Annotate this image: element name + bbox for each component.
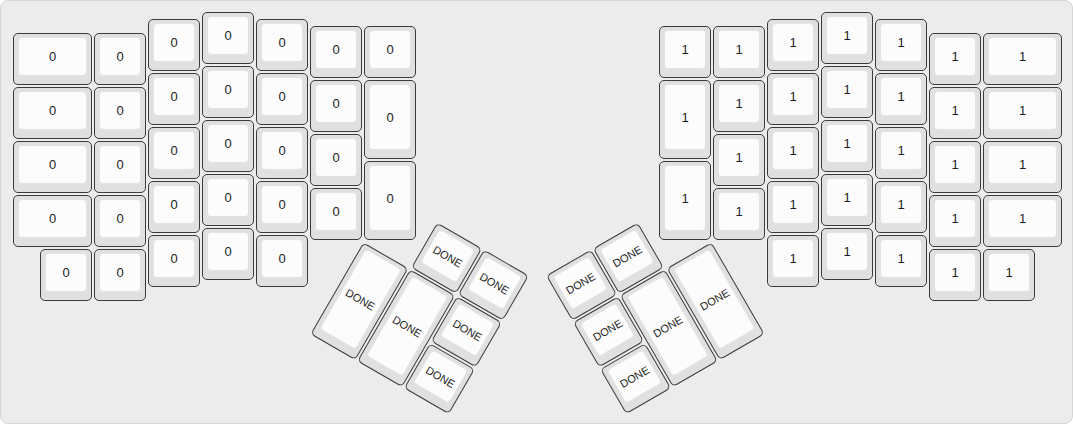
- keycap-top-surface: 0: [261, 77, 303, 116]
- key-label: 1: [735, 96, 742, 111]
- keycap-top-surface: DONE: [552, 256, 608, 311]
- keycap-right-main[interactable]: 1: [929, 141, 981, 193]
- keycap-left-main[interactable]: 0: [256, 73, 308, 125]
- keycap-top-surface: 0: [153, 23, 195, 62]
- key-label: 0: [170, 143, 177, 158]
- keycap-top-surface: DONE: [599, 229, 655, 284]
- key-label: 1: [951, 49, 958, 64]
- key-label: 0: [332, 150, 339, 165]
- keycap-top-surface: 0: [315, 192, 357, 231]
- key-label: 0: [224, 190, 231, 205]
- keycap-right-main[interactable]: 1: [767, 73, 819, 125]
- keycap-top-surface: 0: [99, 91, 141, 130]
- key-label: 0: [224, 82, 231, 97]
- keycap-top-surface: 1: [772, 131, 814, 170]
- keycap-left-main[interactable]: 0: [202, 228, 254, 280]
- key-label: 0: [332, 96, 339, 111]
- keycap-right-main[interactable]: 1: [821, 228, 873, 280]
- keycap-left-main[interactable]: 0: [148, 73, 200, 125]
- keycap-top-surface: DONE: [467, 256, 523, 311]
- key-label: 1: [735, 150, 742, 165]
- keycap-left-main[interactable]: 0: [364, 80, 416, 159]
- keycap-right-main[interactable]: 1: [659, 80, 711, 159]
- key-label: 0: [170, 197, 177, 212]
- key-label: 1: [789, 143, 796, 158]
- keycap-top-surface: 1: [718, 192, 760, 231]
- keycap-right-main[interactable]: 1: [929, 87, 981, 139]
- keycap-right-main[interactable]: 1: [875, 73, 927, 125]
- keycap-top-surface: 0: [153, 185, 195, 224]
- key-label: 0: [170, 251, 177, 266]
- key-label: 1: [789, 251, 796, 266]
- keycap-top-surface: 1: [826, 178, 868, 217]
- key-label: DONE: [610, 243, 644, 269]
- keycap-top-surface: 0: [18, 91, 87, 130]
- key-label: 1: [951, 103, 958, 118]
- keycap-left-main[interactable]: 0: [13, 141, 92, 193]
- keycap-left-main[interactable]: 0: [202, 66, 254, 118]
- keycap-top-surface: 0: [315, 138, 357, 177]
- keycap-left-main[interactable]: 0: [13, 33, 92, 85]
- keycap-top-surface: 0: [207, 16, 249, 55]
- keycap-top-surface: 0: [207, 232, 249, 271]
- key-label: 0: [116, 265, 123, 280]
- key-label: 1: [1019, 49, 1026, 64]
- key-label: DONE: [651, 313, 685, 339]
- keycap-top-surface: 0: [369, 165, 411, 231]
- keycap-left-main[interactable]: 0: [310, 26, 362, 78]
- key-label: 1: [897, 89, 904, 104]
- key-label: 1: [789, 35, 796, 50]
- keycap-right-main[interactable]: 1: [821, 120, 873, 172]
- keycap-right-main[interactable]: 1: [983, 141, 1062, 193]
- keycap-top-surface: 0: [207, 124, 249, 163]
- key-label: 1: [681, 110, 688, 125]
- key-label: 1: [735, 204, 742, 219]
- key-label: 1: [843, 82, 850, 97]
- key-label: 1: [1019, 211, 1026, 226]
- keycap-top-surface: 0: [99, 199, 141, 238]
- keycap-top-surface: 1: [664, 84, 706, 150]
- keycap-top-surface: 1: [934, 37, 976, 76]
- keycap-top-surface: 1: [772, 239, 814, 278]
- key-label: DONE: [391, 313, 425, 339]
- key-label: DONE: [591, 317, 625, 343]
- key-label: 0: [116, 157, 123, 172]
- key-label: DONE: [564, 270, 598, 296]
- key-label: DONE: [431, 243, 465, 269]
- keycap-left-main[interactable]: 0: [94, 87, 146, 139]
- keycap-top-surface: 1: [988, 91, 1057, 130]
- keycap-top-surface: 1: [718, 84, 760, 123]
- key-label: 1: [843, 190, 850, 205]
- keycap-right-main[interactable]: 1: [983, 87, 1062, 139]
- keycap-top-surface: 1: [772, 77, 814, 116]
- keycap-top-surface: 1: [934, 145, 976, 184]
- keycap-left-main[interactable]: 0: [256, 235, 308, 287]
- keycap-top-surface: 1: [664, 165, 706, 231]
- keycap-top-surface: DONE: [420, 229, 476, 284]
- keycap-left-main[interactable]: 0: [13, 195, 92, 247]
- key-label: 0: [278, 143, 285, 158]
- keycap-top-surface: 0: [369, 30, 411, 69]
- key-label: DONE: [344, 286, 378, 312]
- keycap-right-main[interactable]: 1: [983, 249, 1035, 301]
- keycap-top-surface: 0: [153, 239, 195, 278]
- key-label: 0: [49, 157, 56, 172]
- keycap-left-main[interactable]: 0: [364, 26, 416, 78]
- key-label: DONE: [424, 363, 458, 389]
- keycap-top-surface: 0: [153, 131, 195, 170]
- keycap-top-surface: 1: [880, 77, 922, 116]
- keycap-right-main[interactable]: 1: [713, 80, 765, 132]
- keycap-top-surface: 0: [261, 131, 303, 170]
- key-label: 0: [386, 191, 393, 206]
- key-label: 0: [332, 42, 339, 57]
- key-label: DONE: [451, 317, 485, 343]
- key-label: 1: [789, 197, 796, 212]
- keycap-top-surface: 1: [988, 199, 1057, 238]
- keycap-left-main[interactable]: 0: [256, 19, 308, 71]
- keycap-top-surface: 1: [718, 138, 760, 177]
- keycap-left-main[interactable]: 0: [94, 195, 146, 247]
- keycap-right-main[interactable]: 1: [767, 19, 819, 71]
- keycap-right-main[interactable]: 1: [821, 66, 873, 118]
- keycap-left-main[interactable]: 0: [148, 127, 200, 179]
- key-label: 1: [951, 265, 958, 280]
- keycap-right-main[interactable]: 1: [767, 235, 819, 287]
- key-label: 0: [278, 89, 285, 104]
- keycap-top-surface: 0: [315, 30, 357, 69]
- keyboard-canvas: 00000000000000000000000000000000DONEDONE…: [0, 0, 1073, 424]
- keycap-top-surface: 1: [988, 253, 1030, 292]
- keycap-top-surface: 0: [315, 84, 357, 123]
- key-label: 1: [843, 28, 850, 43]
- keycap-right-main[interactable]: 1: [983, 195, 1062, 247]
- keycap-top-surface: 1: [988, 145, 1057, 184]
- key-label: DONE: [698, 286, 732, 312]
- keycap-top-surface: 0: [99, 253, 141, 292]
- key-label: 1: [1005, 265, 1012, 280]
- key-label: 1: [951, 157, 958, 172]
- keycap-top-surface: 0: [45, 253, 87, 292]
- keycap-top-surface: 1: [934, 91, 976, 130]
- key-label: DONE: [478, 270, 512, 296]
- key-label: 0: [62, 265, 69, 280]
- keycap-right-main[interactable]: 1: [767, 181, 819, 233]
- key-label: 0: [49, 103, 56, 118]
- key-label: 1: [681, 42, 688, 57]
- key-label: 1: [1019, 157, 1026, 172]
- keycap-top-surface: 1: [880, 239, 922, 278]
- key-label: 0: [386, 42, 393, 57]
- keycap-left-main[interactable]: 0: [13, 87, 92, 139]
- key-label: 1: [843, 136, 850, 151]
- keycap-right-main[interactable]: 1: [875, 181, 927, 233]
- key-label: 0: [386, 110, 393, 125]
- key-label: 1: [897, 143, 904, 158]
- keycap-right-main[interactable]: 1: [821, 174, 873, 226]
- keycap-right-main[interactable]: 1: [875, 235, 927, 287]
- keycap-left-main[interactable]: 0: [310, 134, 362, 186]
- key-label: 0: [332, 204, 339, 219]
- keycap-left-main[interactable]: 0: [256, 181, 308, 233]
- keycap-top-surface: 0: [207, 70, 249, 109]
- keycap-top-surface: 1: [718, 30, 760, 69]
- keycap-right-main[interactable]: 1: [929, 195, 981, 247]
- keycap-top-surface: 1: [988, 37, 1057, 76]
- keycap-right-main[interactable]: 1: [983, 33, 1062, 85]
- keycap-right-main[interactable]: 1: [767, 127, 819, 179]
- keycap-top-surface: 1: [880, 23, 922, 62]
- keycap-left-main[interactable]: 0: [310, 80, 362, 132]
- keycap-top-surface: 0: [261, 185, 303, 224]
- key-label: 0: [170, 89, 177, 104]
- keycap-top-surface: 0: [99, 145, 141, 184]
- key-label: 1: [897, 251, 904, 266]
- keycap-left-main[interactable]: 0: [40, 249, 92, 301]
- keycap-right-main[interactable]: 1: [875, 19, 927, 71]
- keycap-top-surface: 0: [369, 84, 411, 150]
- keycap-left-main[interactable]: 0: [310, 188, 362, 240]
- keycap-top-surface: 1: [772, 23, 814, 62]
- keycap-right-main[interactable]: 1: [929, 249, 981, 301]
- key-label: 1: [681, 191, 688, 206]
- key-label: 0: [116, 211, 123, 226]
- keycap-top-surface: 1: [934, 199, 976, 238]
- key-label: 0: [49, 211, 56, 226]
- keycap-top-surface: 0: [153, 77, 195, 116]
- keycap-right-main[interactable]: 1: [713, 134, 765, 186]
- keycap-top-surface: 0: [207, 178, 249, 217]
- keycap-left-main[interactable]: 0: [202, 174, 254, 226]
- keycap-top-surface: 1: [664, 30, 706, 69]
- key-label: 0: [116, 103, 123, 118]
- keycap-right-main[interactable]: 1: [821, 12, 873, 64]
- keycap-right-main[interactable]: 1: [713, 188, 765, 240]
- key-label: 0: [170, 35, 177, 50]
- key-label: 0: [278, 35, 285, 50]
- keycap-right-main[interactable]: 1: [713, 26, 765, 78]
- keycap-top-surface: 0: [18, 145, 87, 184]
- keycap-left-main[interactable]: 0: [256, 127, 308, 179]
- keycap-top-surface: 0: [18, 199, 87, 238]
- keycap-top-surface: 1: [826, 70, 868, 109]
- key-label: 0: [224, 28, 231, 43]
- keycap-right-main[interactable]: 1: [929, 33, 981, 85]
- keycap-right-main[interactable]: 1: [659, 161, 711, 240]
- key-label: 1: [951, 211, 958, 226]
- keycap-left-main[interactable]: 0: [148, 235, 200, 287]
- keycap-top-surface: 1: [880, 185, 922, 224]
- keycap-top-surface: 1: [934, 253, 976, 292]
- key-label: 1: [1019, 103, 1026, 118]
- key-label: 0: [278, 251, 285, 266]
- keycap-left-main[interactable]: 0: [94, 249, 146, 301]
- key-label: 0: [224, 136, 231, 151]
- keycap-left-main[interactable]: 0: [94, 141, 146, 193]
- keycap-top-surface: 1: [826, 16, 868, 55]
- keycap-left-main[interactable]: 0: [202, 120, 254, 172]
- keycap-left-main[interactable]: 0: [148, 19, 200, 71]
- keycap-left-main[interactable]: 0: [148, 181, 200, 233]
- keycap-top-surface: 1: [826, 232, 868, 271]
- keycap-top-surface: 1: [772, 185, 814, 224]
- key-label: 1: [789, 89, 796, 104]
- key-label: 0: [224, 244, 231, 259]
- keycap-left-main[interactable]: 0: [364, 161, 416, 240]
- key-label: 0: [116, 49, 123, 64]
- key-label: 0: [49, 49, 56, 64]
- key-label: 1: [897, 197, 904, 212]
- keycap-top-surface: 0: [261, 239, 303, 278]
- key-label: DONE: [618, 363, 652, 389]
- keycap-top-surface: 1: [880, 131, 922, 170]
- keycap-top-surface: 1: [826, 124, 868, 163]
- keycap-top-surface: 0: [18, 37, 87, 76]
- keycap-right-main[interactable]: 1: [659, 26, 711, 78]
- keycap-left-main[interactable]: 0: [202, 12, 254, 64]
- key-label: 1: [843, 244, 850, 259]
- keycap-right-main[interactable]: 1: [875, 127, 927, 179]
- keycap-left-main[interactable]: 0: [94, 33, 146, 85]
- key-label: 0: [278, 197, 285, 212]
- key-label: 1: [735, 42, 742, 57]
- key-label: 1: [897, 35, 904, 50]
- keycap-top-surface: 0: [261, 23, 303, 62]
- keycap-top-surface: 0: [99, 37, 141, 76]
